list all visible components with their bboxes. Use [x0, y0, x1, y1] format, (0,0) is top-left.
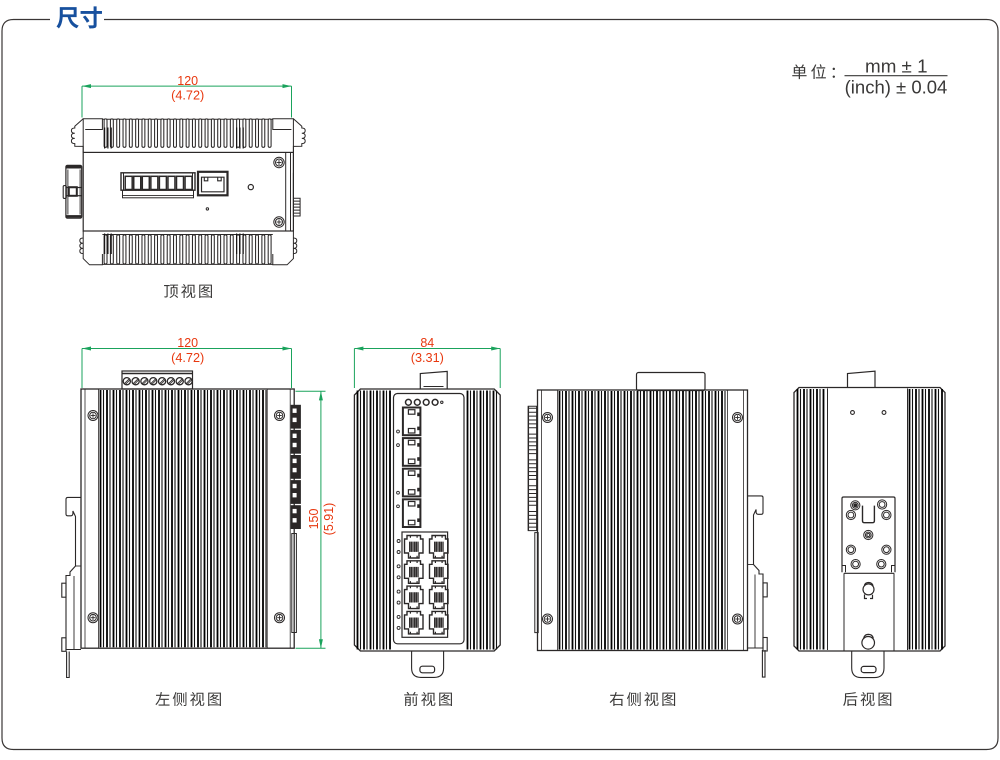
svg-text:120: 120	[177, 74, 198, 88]
svg-text:(3.31): (3.31)	[411, 351, 444, 365]
svg-text:150: 150	[307, 509, 321, 530]
svg-text:(inch) ± 0.04: (inch) ± 0.04	[845, 76, 948, 97]
svg-text:(4.72): (4.72)	[171, 89, 204, 103]
svg-text:120: 120	[177, 336, 198, 350]
svg-text:(4.72): (4.72)	[171, 351, 204, 365]
svg-text:84: 84	[420, 336, 434, 350]
svg-text:(5.91): (5.91)	[322, 503, 336, 536]
svg-text:mm ± 1: mm ± 1	[865, 55, 927, 76]
